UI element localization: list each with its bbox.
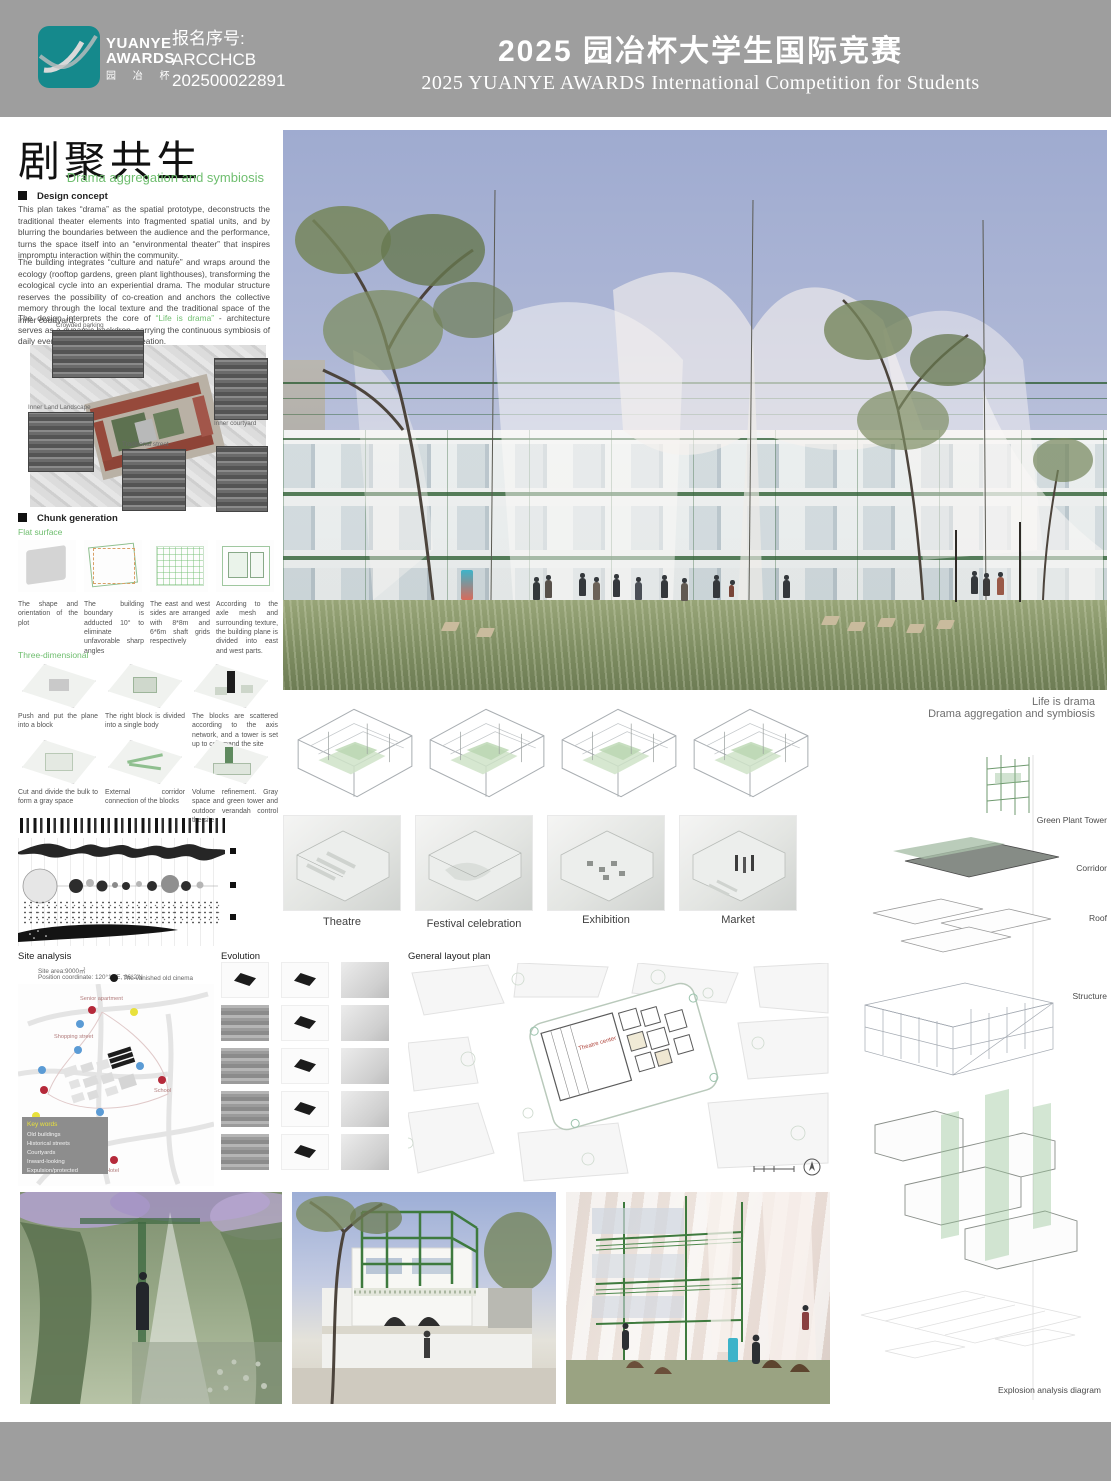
concept-paragraph-1: This plan takes “drama” as the spatial p… <box>18 204 270 262</box>
courtyard-green <box>153 408 185 440</box>
square-bullet-icon <box>18 191 27 200</box>
threed-caption-2: The right block is divided into a single… <box>105 712 185 731</box>
legend-dot-cinema <box>110 974 118 982</box>
registration-code: ARCCHCB <box>172 49 285 70</box>
evolution-tile <box>281 1005 329 1041</box>
map-dot-bus <box>76 1020 84 1028</box>
threed-caption-5: External corridor connection of the bloc… <box>105 788 185 807</box>
grass-texture <box>283 600 1107 690</box>
render-green-tower-interior <box>20 1192 282 1404</box>
lamp-post <box>955 530 957 602</box>
curtain-scene <box>566 1192 830 1404</box>
evolution-tile <box>341 1091 389 1127</box>
map-dot-bus <box>38 1066 46 1074</box>
lamp-post <box>1019 522 1021 602</box>
keyword-item: Expulsion/protected <box>27 1167 103 1176</box>
life-is-drama-highlight: “Life is drama” <box>156 313 214 323</box>
render-axon-festival <box>415 815 533 911</box>
threed-caption-4: Cut and divide the bulk to form a gray s… <box>18 788 98 807</box>
registration-label: 报名序号: <box>172 28 285 49</box>
explosion-label-tower: Green Plant Tower <box>1037 815 1107 825</box>
logo-curve-icon <box>38 26 100 88</box>
east-part <box>250 552 264 578</box>
threed-diagram-3 <box>194 664 268 708</box>
site-photo-label: Crowded parking <box>56 322 104 329</box>
scenario-label-festival: Festival celebration <box>414 918 534 930</box>
keyword-item: Historical streets <box>27 1140 103 1149</box>
evolution-tile <box>281 1134 329 1170</box>
layout-plan-drawing <box>408 963 832 1185</box>
evolution-tile <box>221 1048 269 1084</box>
evolution-tile <box>221 1005 269 1041</box>
scenario-label-market: Market <box>678 914 798 926</box>
evolution-tile <box>341 962 389 998</box>
person-silhouette <box>971 576 978 594</box>
site-photo-extra <box>216 446 268 512</box>
site-photo-street <box>122 449 186 511</box>
explosion-diagram: Green Plant Tower Corridor Roof Structur… <box>845 755 1107 1405</box>
analysis-diagram-panel <box>18 838 225 946</box>
person-silhouette <box>681 583 688 601</box>
explosion-label-corridor: Corridor <box>1076 863 1107 873</box>
plot-shape <box>26 545 66 585</box>
tower <box>227 671 235 693</box>
competition-title-cn: 2025 园冶杯大学生国际竞赛 <box>330 26 1071 70</box>
keyword-item: Inward-looking <box>27 1158 103 1167</box>
registration-number: 202500022891 <box>172 70 285 91</box>
square-bullet-icon <box>18 513 27 522</box>
scenario-label-exhibition: Exhibition <box>546 914 666 926</box>
threed-caption-1: Push and put the plane into a block <box>18 712 98 731</box>
person-silhouette <box>579 578 586 596</box>
site-photo-label: Traditional street <box>122 441 169 448</box>
header-bar: YUANYE AWARDS 园 冶 杯 报名序号: ARCCHCB 202500… <box>0 0 1111 117</box>
person-silhouette <box>533 582 540 600</box>
flat-surface-heading: Flat surface <box>18 527 62 537</box>
map-dot-bus <box>136 1062 144 1070</box>
block <box>49 679 69 691</box>
child-silhouette <box>729 585 734 597</box>
yuanye-logo <box>38 26 100 88</box>
render-axon-theatre <box>283 815 401 911</box>
map-label-senior-apartment: Senior apartment <box>80 996 123 1002</box>
evolution-tile <box>221 1134 269 1170</box>
block <box>133 677 157 693</box>
stream-graph <box>18 838 225 946</box>
map-label-school: School <box>154 1088 171 1094</box>
corridor-line <box>129 763 161 770</box>
grid-mesh <box>156 546 204 586</box>
explosion-drawing <box>845 755 1107 1405</box>
block <box>241 685 253 693</box>
three-dimensional-heading: Three-dimensional <box>18 650 88 660</box>
chunk-generation-heading: Chunk generation <box>18 508 118 526</box>
person-silhouette <box>613 579 620 597</box>
dot-scatter <box>22 900 220 924</box>
west-part <box>228 552 248 578</box>
threed-diagram-4 <box>22 740 96 784</box>
keyword-item: Old buildings <box>27 1131 103 1140</box>
render-courtyard-entrance <box>292 1192 556 1404</box>
flat-step-diagram-2 <box>84 540 142 592</box>
explosion-label-structure: Structure <box>1073 991 1108 1001</box>
registration-block: 报名序号: ARCCHCB 202500022891 <box>172 28 285 91</box>
diagram-bullet <box>230 848 236 854</box>
flat-step-diagram-4 <box>216 540 274 592</box>
explosion-label-roof: Roof <box>1089 913 1107 923</box>
wireframe-axon-theatre <box>288 700 420 804</box>
map-dot-subway <box>130 1008 138 1016</box>
diagram-bullet <box>230 882 236 888</box>
person-silhouette <box>661 580 668 598</box>
scenario-label-theatre: Theatre <box>282 916 402 928</box>
evolution-heading: Evolution <box>221 951 260 962</box>
keyword-item: Courtyards <box>27 1149 103 1158</box>
flat-step-caption-2: The building boundary is adducted 10° to… <box>84 600 144 656</box>
render-axon-market <box>679 815 797 911</box>
brand-text: YUANYE AWARDS 园 冶 杯 <box>106 36 177 84</box>
evolution-tile <box>341 1005 389 1041</box>
gray-space <box>45 753 73 771</box>
threed-diagram-1 <box>22 664 96 708</box>
flat-step-caption-1: The shape and orientation of the plot <box>18 600 78 628</box>
threed-diagram-2 <box>108 664 182 708</box>
person-silhouette <box>635 582 642 600</box>
person-silhouette <box>545 580 552 598</box>
hero-caption-line2: Drama aggregation and symbiosis <box>800 708 1095 720</box>
project-subtitle: Drama aggregation and symbiosis <box>18 170 264 185</box>
flat-step-caption-4: According to the axle mesh and surroundi… <box>216 600 278 656</box>
keywords-title: Key words <box>27 1121 103 1128</box>
courtyard-scene <box>292 1192 556 1404</box>
info-column <box>461 570 473 600</box>
brand-line1: YUANYE <box>106 36 177 51</box>
render-axon-exhibition <box>547 815 665 911</box>
wireframe-axon-festival <box>420 700 552 804</box>
grass-field <box>283 600 1107 690</box>
diagram-bullet <box>230 914 236 920</box>
design-concept-heading: Design concept <box>18 186 108 204</box>
map-dot-bus <box>96 1108 104 1116</box>
brand-line2: AWARDS <box>106 51 177 66</box>
person-silhouette <box>593 582 600 600</box>
legend-label-cinema: The vanished old cinema <box>123 975 193 982</box>
wireframe-axon-market <box>684 700 816 804</box>
brand-cn: 园 冶 杯 <box>106 69 177 84</box>
person-silhouette <box>783 580 790 598</box>
block <box>215 687 227 695</box>
site-photo-label: Inner courtyard <box>214 420 256 427</box>
person-silhouette <box>136 1282 149 1330</box>
timeline-barcode <box>20 818 225 833</box>
hero-caption: Life is drama Drama aggregation and symb… <box>800 696 1095 720</box>
person-head <box>139 1272 147 1280</box>
evolution-tile <box>281 962 329 998</box>
evolution-tile <box>221 962 269 998</box>
threed-caption-3: The blocks are scattered according to th… <box>192 712 278 749</box>
site-photo-parking <box>52 330 144 378</box>
evolution-tile <box>341 1048 389 1084</box>
flat-step-diagram-3 <box>150 540 208 592</box>
keywords-box: Key words Old buildings Historical stree… <box>22 1117 108 1174</box>
evolution-grid <box>221 962 393 1174</box>
site-photo-label: Inner Land Landscape <box>28 404 91 411</box>
general-layout-plan: Theatre center <box>408 963 832 1185</box>
person-silhouette <box>997 577 1004 595</box>
explosion-caption: Explosion analysis diagram <box>998 1385 1101 1395</box>
person-silhouette <box>713 580 720 598</box>
hero-caption-line1: Life is drama <box>800 696 1095 708</box>
flat-step-diagram-1 <box>18 540 76 592</box>
site-analysis-heading: Site analysis <box>18 951 71 962</box>
map-dot-building-node <box>40 1086 48 1094</box>
evolution-tile <box>221 1091 269 1127</box>
map-dot-building-node <box>88 1006 96 1014</box>
person-silhouette <box>983 578 990 596</box>
evolution-tile <box>281 1091 329 1127</box>
map-label-shopping-street: Shopping street <box>54 1034 93 1040</box>
map-dot-building-node <box>110 1156 118 1164</box>
map-dot-bus <box>74 1046 82 1054</box>
site-photo-landscape <box>28 412 94 472</box>
threed-diagram-5 <box>108 740 182 784</box>
verandah <box>213 763 251 775</box>
wisteria-scene <box>20 1192 282 1404</box>
evolution-tile <box>281 1048 329 1084</box>
render-curtain-facade <box>566 1192 830 1404</box>
map-dot-building-node <box>158 1076 166 1084</box>
wireframe-axon-exhibition <box>552 700 684 804</box>
flat-step-caption-3: The east and west sides are arranged wit… <box>150 600 210 647</box>
footer-strip <box>0 1422 1111 1481</box>
competition-title-en: 2025 YUANYE AWARDS International Competi… <box>330 72 1071 95</box>
hero-render <box>283 130 1107 690</box>
corridor-line <box>127 753 163 763</box>
roof-strip <box>192 395 213 437</box>
boundary-dashed <box>93 548 135 584</box>
site-photo-courtyard <box>214 358 268 420</box>
evolution-tile <box>341 1134 389 1170</box>
layout-plan-heading: General layout plan <box>408 951 490 962</box>
